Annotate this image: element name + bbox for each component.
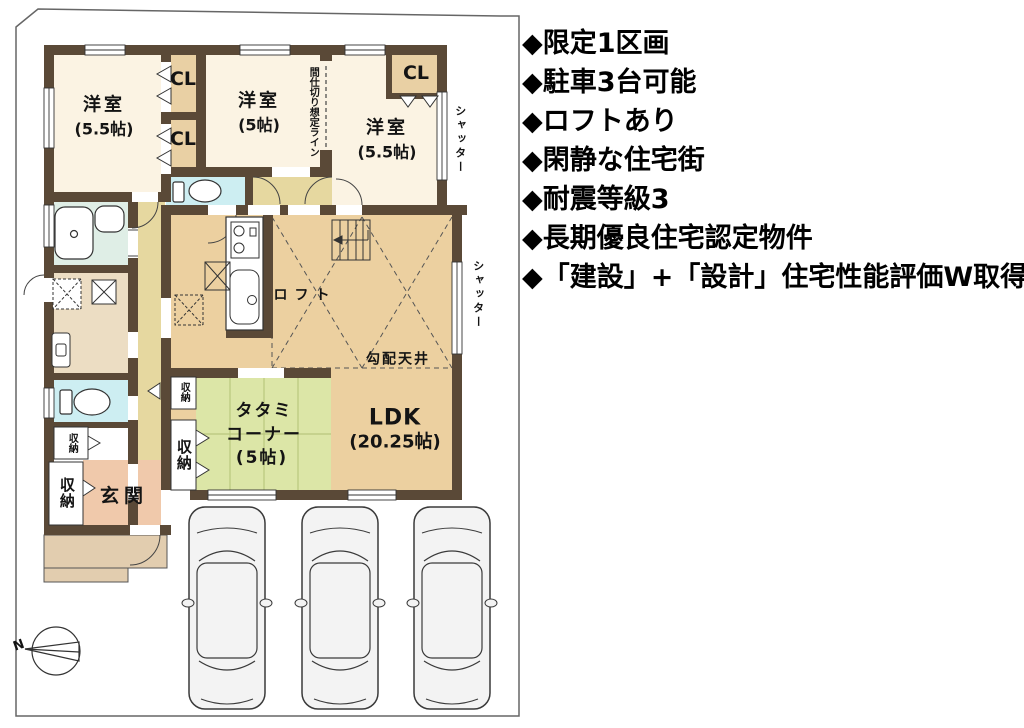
feature-item: ◆長期優良住宅認定物件: [522, 219, 1022, 258]
feature-list: ◆限定1区画 ◆駐車3台可能 ◆ロフトあり ◆閑静な住宅街 ◆耐震等級3 ◆長期…: [522, 24, 1022, 297]
toilet-left-icon: [60, 389, 110, 415]
toilet-middle-icon: [173, 180, 221, 202]
feature-item: ◆ロフトあり: [522, 102, 1022, 141]
floor-plan-drawing: [0, 0, 530, 728]
floor-plan: 洋室 (5.5帖) 洋室 (5帖) 洋室 (5.5帖) LDK (20.25帖)…: [0, 0, 530, 728]
washbasin-icon: [52, 333, 70, 367]
feature-item: ◆「建設」+「設計」住宅性能評価W取得: [522, 258, 1022, 297]
car-icon: [407, 507, 497, 709]
property-flyer: 洋室 (5.5帖) 洋室 (5帖) 洋室 (5.5帖) LDK (20.25帖)…: [0, 0, 1024, 728]
feature-item: ◆耐震等級3: [522, 180, 1022, 219]
feature-item: ◆駐車3台可能: [522, 63, 1022, 102]
car-icon: [295, 507, 385, 709]
feature-item: ◆限定1区画: [522, 24, 1022, 63]
feature-item: ◆閑静な住宅街: [522, 141, 1022, 180]
kitchen-counter-icon: [226, 217, 263, 330]
car-icon: [182, 507, 272, 709]
